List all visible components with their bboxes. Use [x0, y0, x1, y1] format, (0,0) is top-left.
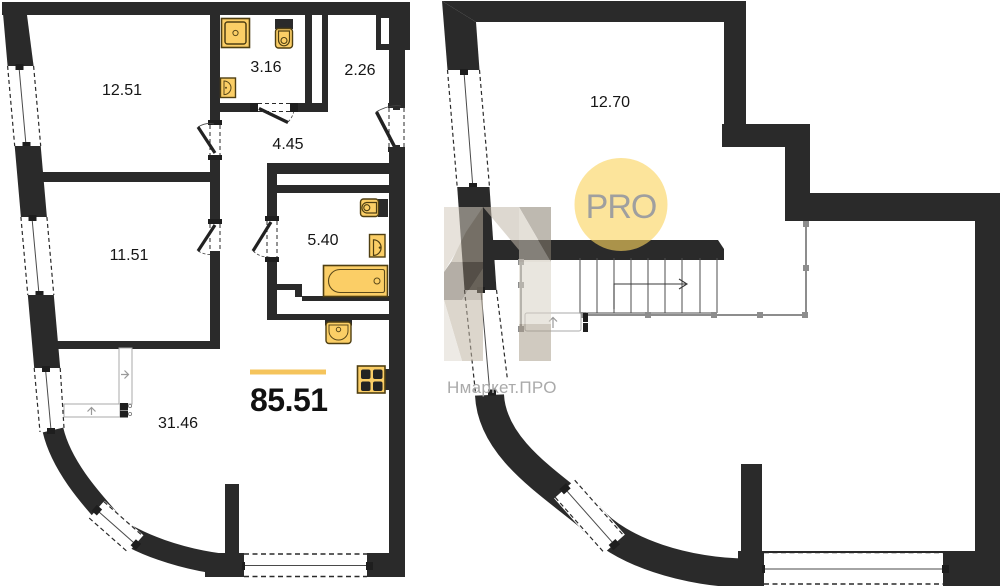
svg-text:12.51: 12.51 — [102, 82, 142, 99]
svg-text:4.45: 4.45 — [272, 136, 303, 153]
svg-text:Нмаркет.ПРО: Нмаркет.ПРО — [447, 378, 557, 397]
svg-text:85.51: 85.51 — [250, 382, 328, 418]
svg-text:12.70: 12.70 — [590, 94, 630, 111]
svg-text:31.46: 31.46 — [158, 415, 198, 432]
svg-text:3.16: 3.16 — [250, 59, 281, 76]
svg-text:5.40: 5.40 — [307, 232, 338, 249]
svg-text:2.26: 2.26 — [344, 62, 375, 79]
svg-text:11.51: 11.51 — [110, 247, 149, 264]
svg-text:PRO: PRO — [586, 188, 657, 226]
